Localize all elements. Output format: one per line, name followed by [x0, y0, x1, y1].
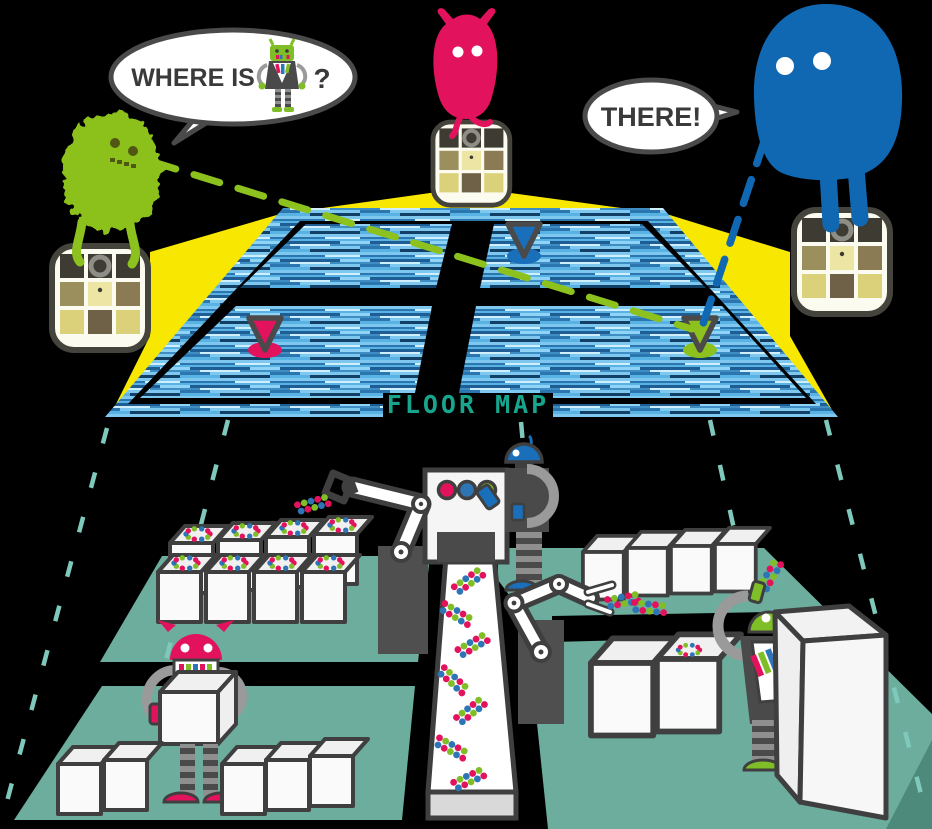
conveyor-belt-front — [428, 792, 516, 818]
answer-text: THERE! — [601, 102, 702, 132]
machine-outlet — [437, 532, 495, 562]
machine-light-blue — [459, 482, 476, 499]
question-text-suffix: ? — [313, 63, 330, 94]
question-text-prefix: WHERE IS — [131, 64, 255, 92]
machine-light-pink — [439, 482, 456, 499]
camera-device-center — [433, 122, 510, 205]
boxes-right-middle — [591, 634, 741, 735]
robot-factory-illustration: FLOOR MAP WHERE IS ? — [0, 0, 932, 829]
cabinet — [775, 606, 886, 818]
floor-map-label: FLOOR MAP — [387, 390, 549, 419]
boxes-stack-left — [158, 517, 372, 622]
carried-box — [160, 672, 236, 744]
scene-canvas: FLOOR MAP WHERE IS ? — [0, 0, 932, 829]
camera-device-right — [794, 210, 890, 314]
green-monster-body — [62, 112, 162, 232]
assembly-machine — [425, 470, 507, 562]
blue-monster-body — [754, 4, 902, 180]
